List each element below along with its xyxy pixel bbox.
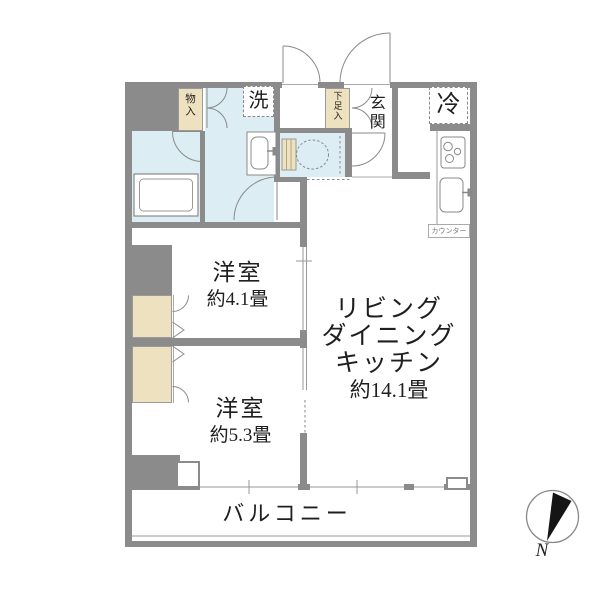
balcony-label: バルコニー	[187, 502, 387, 525]
counter-label: カウンター	[428, 224, 470, 238]
floor-plan: 洗 冷	[0, 0, 600, 600]
bathtub	[134, 174, 198, 216]
closet-doors	[173, 295, 189, 403]
wash-basin	[247, 132, 277, 175]
kitchen-stove	[441, 137, 465, 168]
ldk-label-line1: リビング	[294, 297, 484, 323]
storage-label: 物入	[184, 93, 195, 118]
ldk-label-line2: ダイニング	[294, 324, 484, 350]
bedroom-small-name: 洋室	[155, 261, 320, 285]
compass-icon	[527, 491, 579, 543]
ldk-label-line3: キッチン	[294, 351, 484, 377]
ldk-size: 約14.1畳	[294, 379, 484, 401]
entrance-label: 玄関	[366, 94, 383, 132]
bedroom-large-size: 約5.3畳	[158, 426, 323, 446]
compass-north-label: N	[529, 541, 555, 561]
toilet	[282, 139, 329, 170]
shoe-cabinet-label: 下足入	[332, 91, 341, 121]
entrance-doors	[282, 33, 390, 85]
